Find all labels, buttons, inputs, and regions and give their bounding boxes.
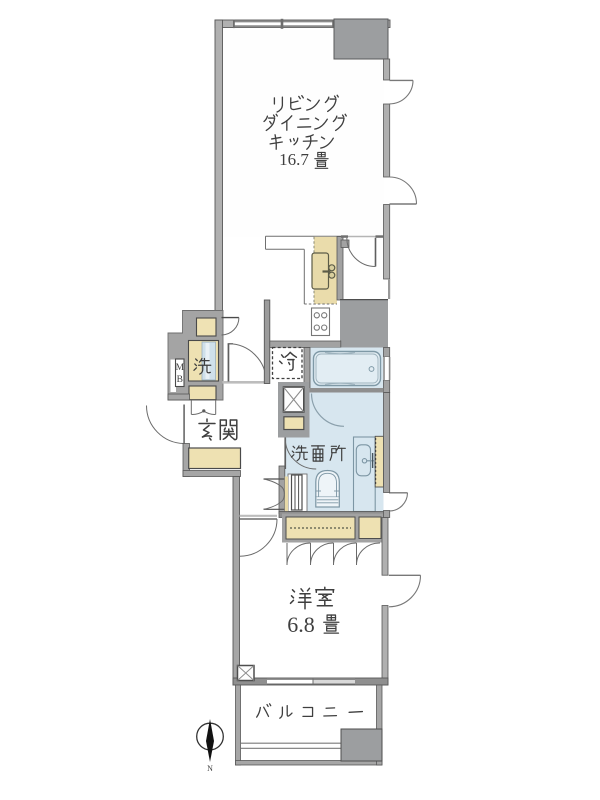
svg-text:6.8: 6.8 [287, 612, 315, 637]
svg-text:N: N [207, 764, 213, 773]
svg-text:B: B [177, 375, 183, 385]
svg-text:M: M [176, 363, 185, 373]
svg-text:16.7: 16.7 [279, 150, 309, 169]
